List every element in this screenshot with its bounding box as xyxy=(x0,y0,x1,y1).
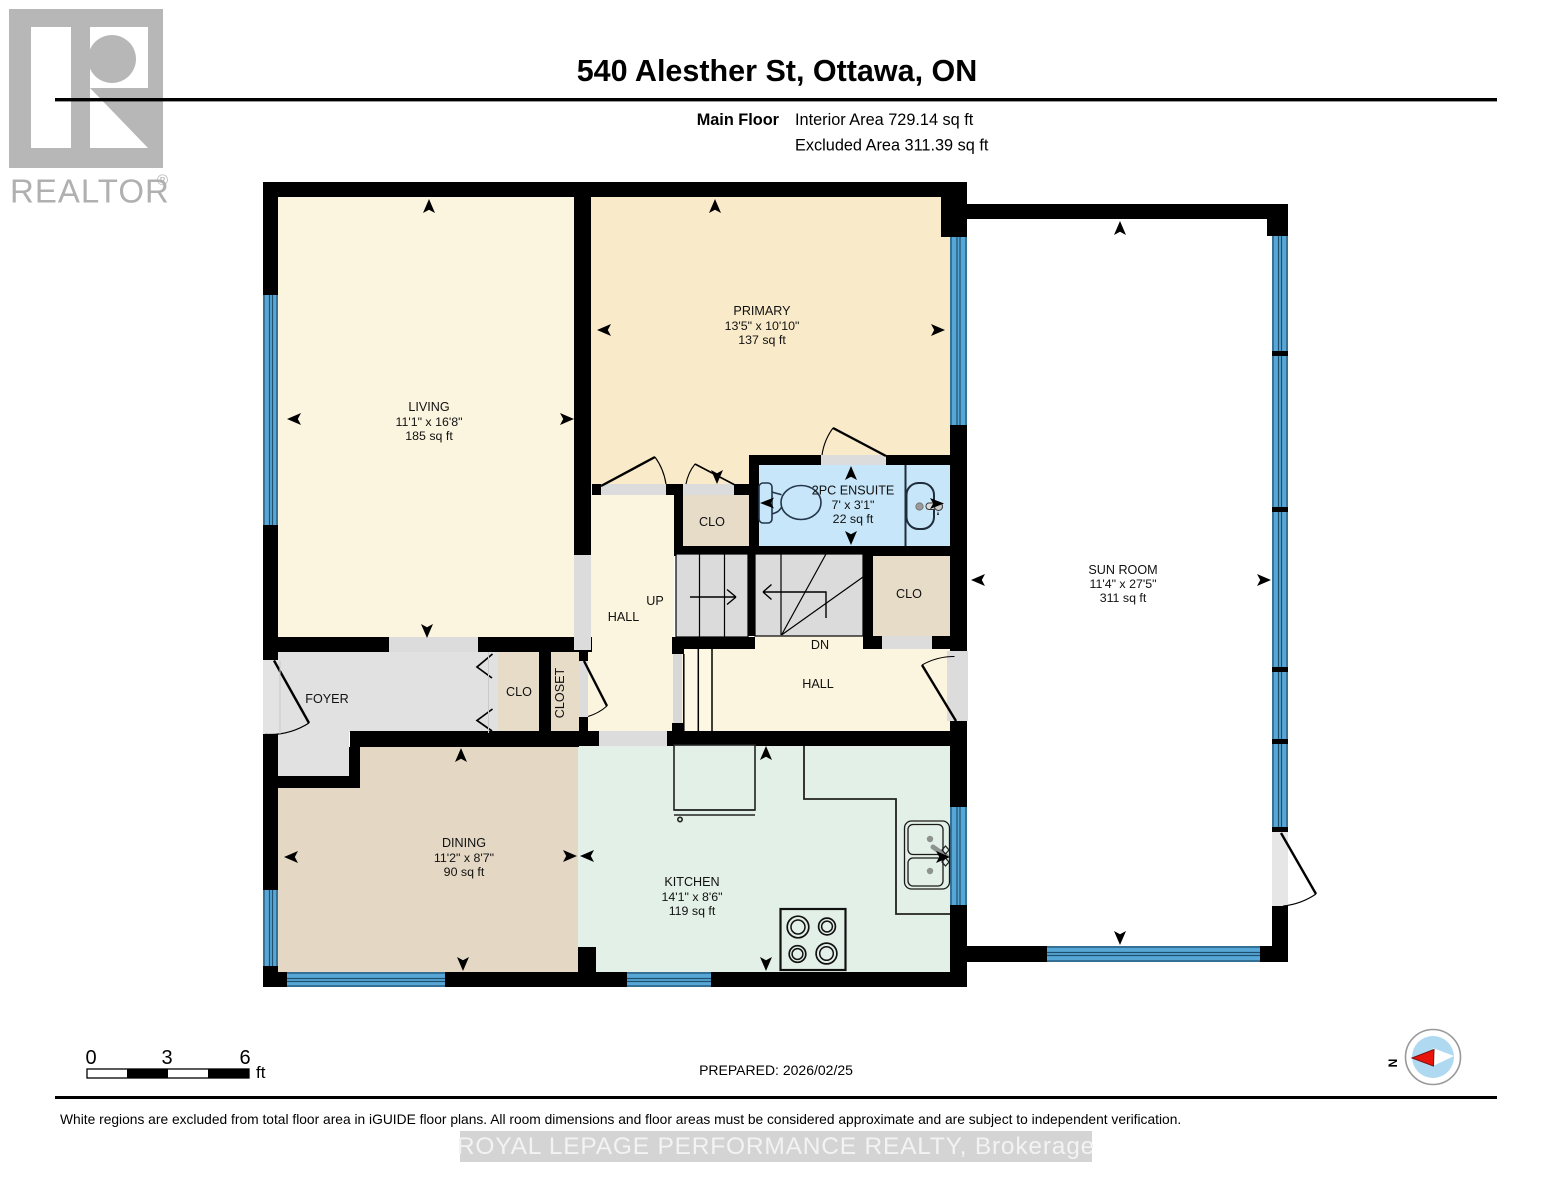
svg-text:540 Alesther St, Ottawa, ON: 540 Alesther St, Ottawa, ON xyxy=(577,54,978,88)
svg-text:DINING: DINING xyxy=(442,836,486,850)
svg-text:DN: DN xyxy=(811,638,829,652)
svg-text:2PC ENSUITE: 2PC ENSUITE xyxy=(812,484,895,498)
svg-text:Main Floor: Main Floor xyxy=(697,111,780,129)
svg-text:CLO: CLO xyxy=(699,515,725,529)
svg-text:Interior Area 729.14 sq ft: Interior Area 729.14 sq ft xyxy=(795,111,974,129)
svg-text:6: 6 xyxy=(239,1047,250,1069)
svg-text:HALL: HALL xyxy=(608,610,640,624)
svg-text:22 sq ft: 22 sq ft xyxy=(833,512,874,526)
svg-text:Excluded Area 311.39 sq ft: Excluded Area 311.39 sq ft xyxy=(795,137,989,155)
svg-text:CLO: CLO xyxy=(506,685,532,699)
svg-text:CLOSET: CLOSET xyxy=(553,668,567,719)
svg-text:3: 3 xyxy=(161,1047,172,1069)
svg-text:0: 0 xyxy=(85,1047,96,1069)
svg-text:UP: UP xyxy=(646,594,664,608)
svg-text:N: N xyxy=(1386,1059,1400,1068)
svg-text:®: ® xyxy=(157,172,168,189)
svg-text:REALTOR: REALTOR xyxy=(10,173,170,210)
svg-text:185 sq ft: 185 sq ft xyxy=(405,429,453,443)
svg-text:LIVING: LIVING xyxy=(408,400,449,414)
svg-text:13'5" x 10'10": 13'5" x 10'10" xyxy=(725,319,800,333)
svg-text:311 sq ft: 311 sq ft xyxy=(1100,591,1147,605)
svg-text:90 sq ft: 90 sq ft xyxy=(444,865,485,879)
svg-text:119 sq ft: 119 sq ft xyxy=(669,904,716,918)
svg-text:CLO: CLO xyxy=(896,587,922,601)
svg-text:ROYAL LEPAGE PERFORMANCE REALT: ROYAL LEPAGE PERFORMANCE REALTY, Brokera… xyxy=(457,1133,1095,1160)
svg-text:14'1" x 8'6": 14'1" x 8'6" xyxy=(661,890,722,904)
svg-text:11'4" x 27'5": 11'4" x 27'5" xyxy=(1089,577,1156,591)
svg-text:PREPARED: 2026/02/25: PREPARED: 2026/02/25 xyxy=(699,1062,853,1078)
svg-text:KITCHEN: KITCHEN xyxy=(664,875,719,889)
svg-text:PRIMARY: PRIMARY xyxy=(733,304,791,318)
svg-text:7' x 3'1": 7' x 3'1" xyxy=(832,498,875,512)
svg-text:11'1" x 16'8": 11'1" x 16'8" xyxy=(395,415,462,429)
svg-text:11'2" x 8'7": 11'2" x 8'7" xyxy=(434,851,494,865)
svg-text:White regions are excluded fro: White regions are excluded from total fl… xyxy=(60,1112,1181,1127)
svg-text:HALL: HALL xyxy=(802,677,834,691)
svg-text:SUN ROOM: SUN ROOM xyxy=(1088,563,1157,577)
svg-text:137 sq ft: 137 sq ft xyxy=(738,333,786,347)
svg-text:FOYER: FOYER xyxy=(305,692,348,706)
svg-text:ft: ft xyxy=(256,1063,266,1082)
